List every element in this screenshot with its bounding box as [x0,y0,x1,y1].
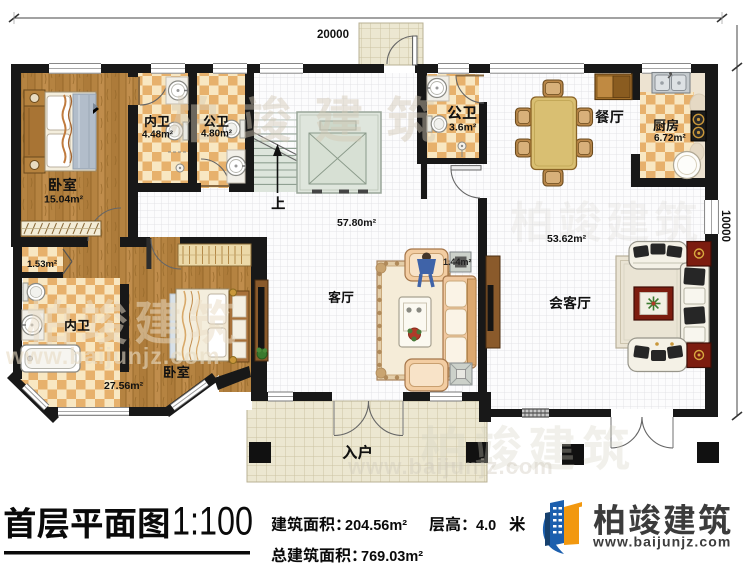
svg-text:1.53m²: 1.53m² [27,259,57,270]
svg-text:57.80m²: 57.80m² [337,217,377,229]
svg-text:10000: 10000 [719,210,731,242]
svg-text:www.baijunjz.com: www.baijunjz.com [592,534,731,550]
svg-text:1:100: 1:100 [172,500,253,544]
svg-text:1.44m²: 1.44m² [443,257,472,267]
svg-text:15.04m²: 15.04m² [44,194,84,206]
svg-text:4.80m²: 4.80m² [201,129,233,140]
svg-text:53.62m²: 53.62m² [547,233,587,245]
svg-text:769.03m²: 769.03m² [361,549,423,565]
svg-text:6.72m²: 6.72m² [654,133,686,144]
svg-text:www.baijunjz.com: www.baijunjz.com [5,343,221,369]
svg-text:20000: 20000 [317,29,349,41]
svg-text:4.48m²: 4.48m² [142,130,174,141]
svg-text:4.0: 4.0 [476,518,496,534]
svg-text:27.56m²: 27.56m² [104,380,144,392]
svg-text:www.baijunjz.com: www.baijunjz.com [347,454,554,479]
svg-text:204.56m²: 204.56m² [345,518,407,534]
svg-text:3.6m²: 3.6m² [449,122,477,134]
